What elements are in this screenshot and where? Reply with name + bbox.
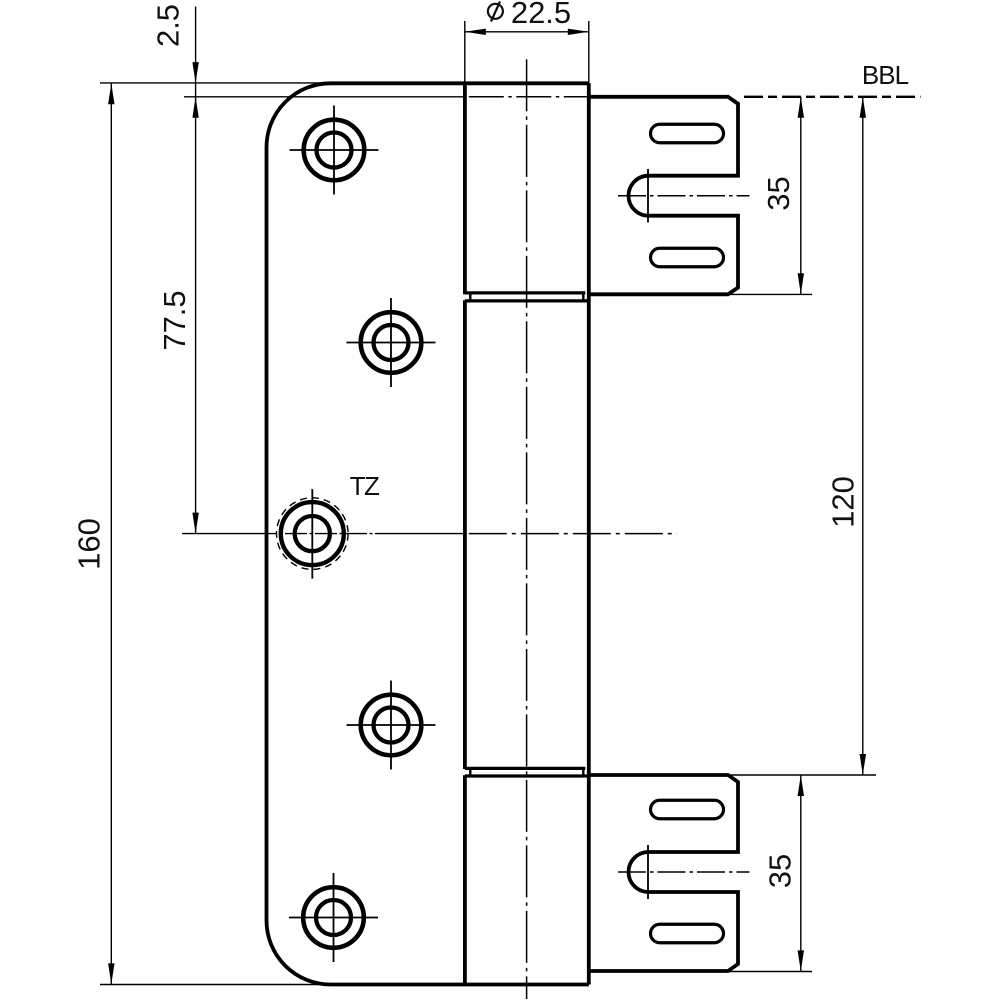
svg-text:120: 120	[825, 476, 860, 528]
svg-text:TZ: TZ	[350, 471, 380, 501]
svg-text:2.5: 2.5	[150, 4, 185, 47]
svg-text:160: 160	[72, 518, 107, 570]
svg-text:BBL: BBL	[862, 60, 909, 90]
svg-text:35: 35	[763, 854, 798, 888]
svg-text:77.5: 77.5	[157, 290, 192, 350]
svg-text:35: 35	[761, 176, 796, 210]
svg-text:22.5: 22.5	[511, 0, 571, 30]
